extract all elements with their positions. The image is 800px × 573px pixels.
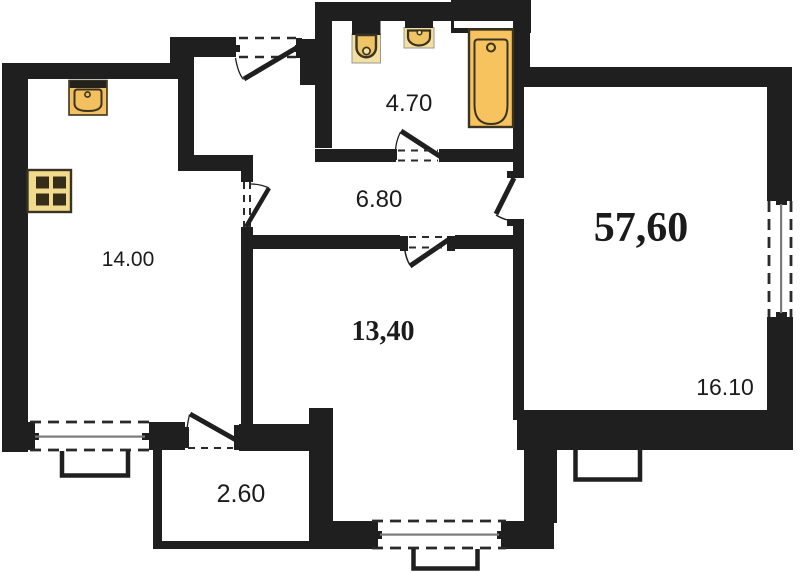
svg-text:6.80: 6.80 [356, 186, 403, 213]
svg-text:14.00: 14.00 [102, 248, 155, 271]
svg-text:2.60: 2.60 [217, 480, 266, 508]
svg-text:13,40: 13,40 [352, 316, 415, 347]
svg-text:16.10: 16.10 [696, 374, 754, 400]
svg-text:4.70: 4.70 [386, 90, 433, 117]
svg-text:57,60: 57,60 [594, 205, 689, 251]
